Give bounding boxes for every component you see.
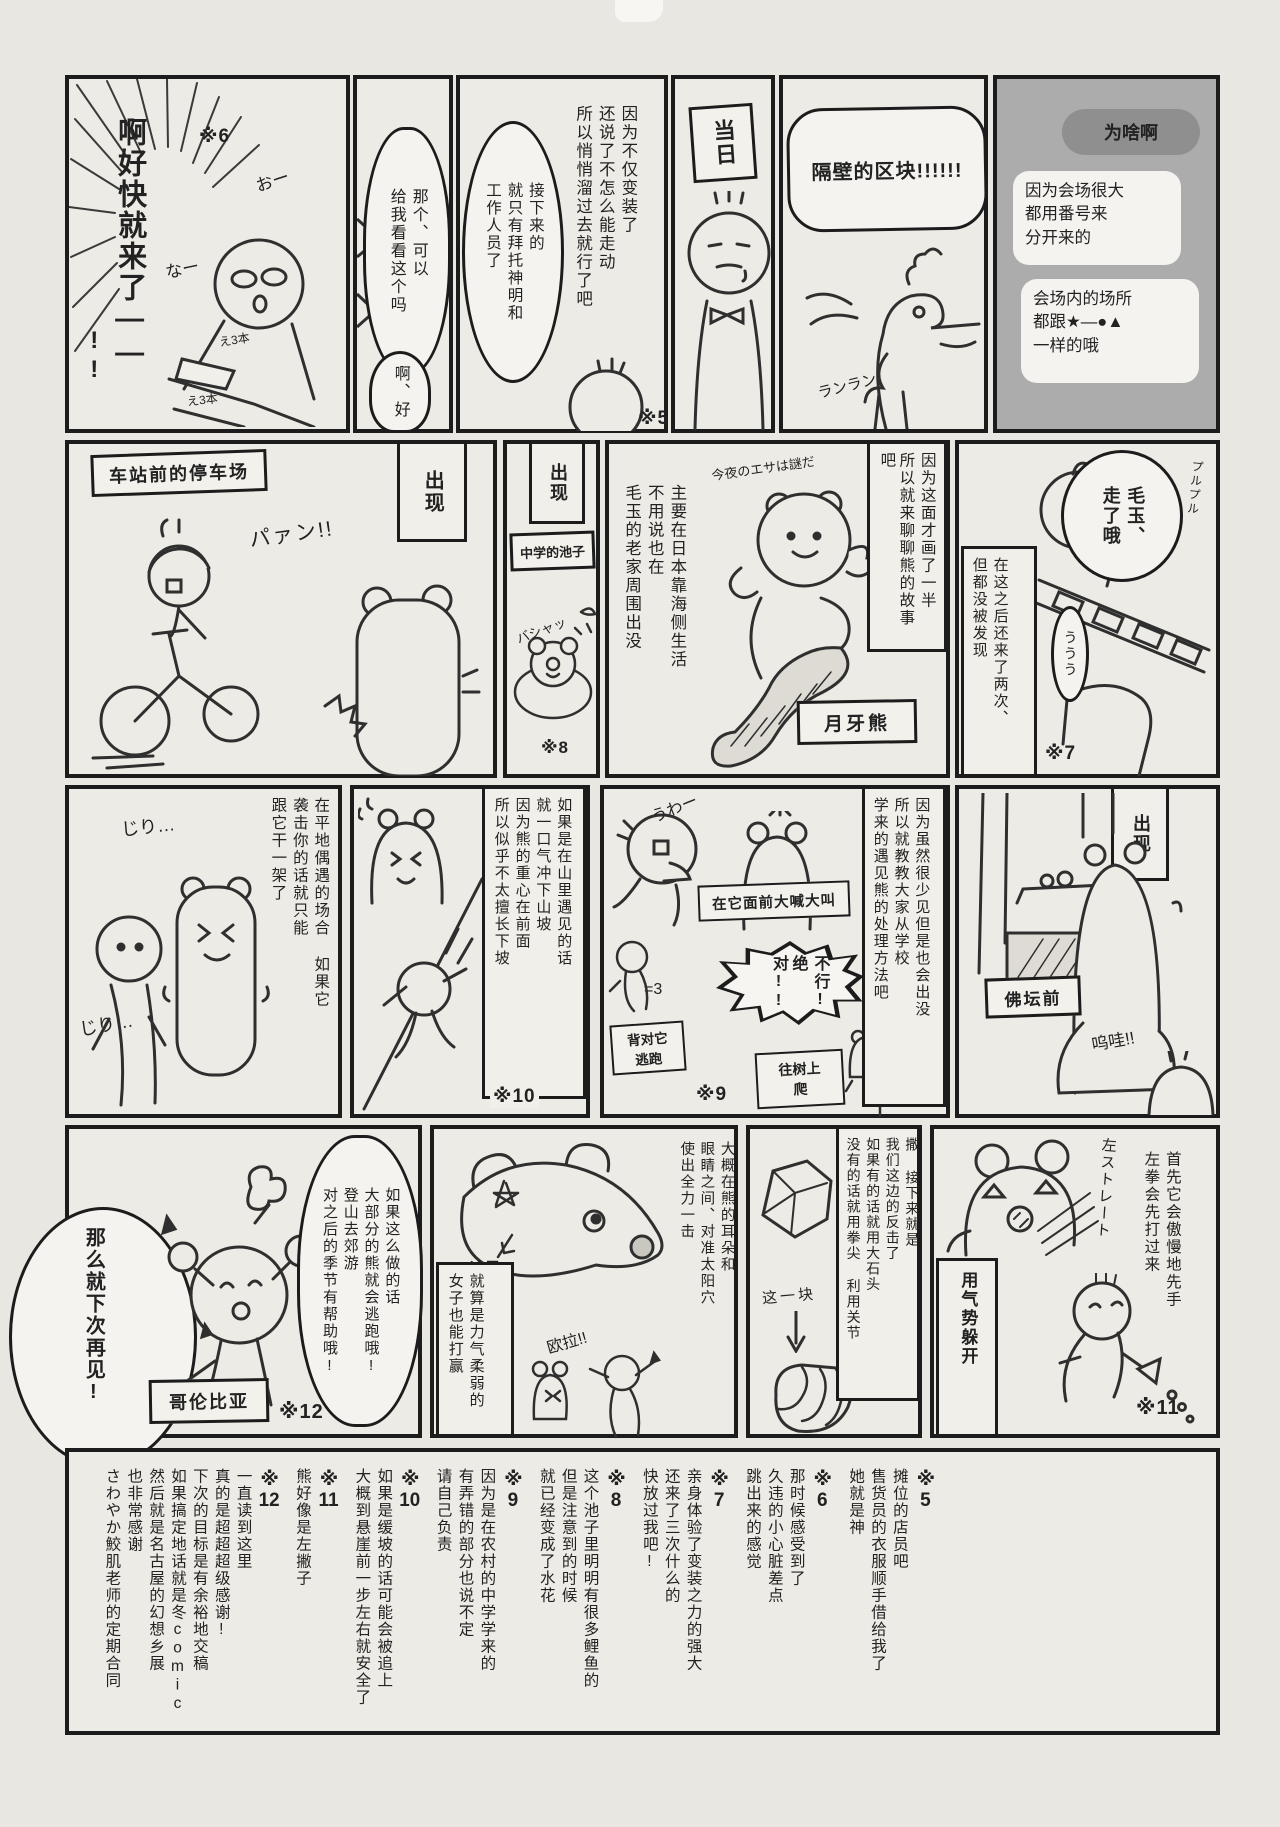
ref-mark-6: ※6 — [199, 125, 230, 148]
footnote-label: ※6 — [811, 1468, 833, 1715]
advice-line: 如果这么做的话 — [382, 1187, 400, 1376]
footnote-line: 久违的小心脏差点 — [765, 1468, 784, 1715]
footnote-line: 就已经变成了水花 — [536, 1468, 555, 1715]
bear-back-doodle — [321, 556, 481, 776]
speech-line: 毛玉、 — [1123, 486, 1145, 546]
footnote-line: 这个池子里明明有很多鲤鱼的 — [580, 1468, 599, 1715]
question-bubble: 为啥啊 — [1062, 109, 1200, 155]
panel-r3-2: 如果是在山里遇见的话 就一口气冲下山坡 因为熊的重心在前面 所以似乎不太擅长下坡… — [350, 785, 590, 1118]
footnote-line: 真的是超超超级感谢! — [211, 1468, 230, 1715]
footnote-line: 售货员的衣服顺手借给我了 — [868, 1468, 887, 1715]
caption-text: 撒 接下来就是 我们这边的反击了 如果有的话就用大石头 没有的话就用拳尖 利用关… — [842, 1137, 923, 1390]
footnote-label: ※10 — [398, 1468, 420, 1715]
speech-line: 接下来的 — [525, 182, 544, 322]
label-text: 爬 — [793, 1079, 808, 1100]
answer-line: 一样的哦 — [1033, 335, 1187, 358]
caption-text: 在这之后还来了两次、 但都没被发现 — [967, 557, 1011, 766]
panel-r1-5: 隔壁的区块!!!!!! ランラン — [779, 75, 988, 433]
ref-number: 5 — [915, 1491, 936, 1510]
footnotes-box: ※5 摊位的店员吧 售货员的衣服顺手借给我了 她就是神 ※6 那时候感受到了 久… — [65, 1448, 1220, 1735]
caption-line: 女子也能打赢 — [446, 1273, 464, 1426]
ref-mark-8: ※8 — [541, 738, 569, 758]
answer-line: 都用番号来 — [1025, 203, 1169, 226]
ref-mark-12: ※12 — [279, 1399, 324, 1424]
ref-number: 12 — [259, 1491, 280, 1510]
label-shout-at-it: 在它面前大喊大叫 — [697, 880, 850, 921]
footnote-label: ※12 — [258, 1468, 280, 1715]
ref-symbol: ※ — [812, 1468, 833, 1491]
panel-r1-6: 为啥啊 因为会场很大 都用番号来 分开来的 会场内的场所 都跟★—●▲ 一样的哦 — [993, 75, 1220, 433]
footnote-item: ※5 摊位的店员吧 售货员的衣服顺手借给我了 她就是神 — [846, 1468, 936, 1715]
note-line: 所以就来聊聊熊的故事吧 — [877, 452, 915, 641]
caption-line: 主要在日本靠海侧生活 — [667, 484, 687, 769]
ref-mark-11: ※11 — [1136, 1395, 1180, 1420]
panel-r4-3: 这一块 撒 接下来就是 我们这边的反击了 如果有的话就用大石头 没有的话就用拳尖… — [746, 1125, 922, 1438]
fleeing-person-doodle — [606, 937, 662, 1027]
scan-artifact — [615, 0, 663, 22]
caption-line: 眼睛之间、对准太阳穴 — [697, 1141, 715, 1433]
caption-line: 所以似乎不太擅长下坡 — [492, 797, 510, 1088]
advice-line: 登山去郊游 — [340, 1187, 358, 1376]
sign-altar-front: 佛坛前 — [984, 975, 1081, 1018]
advice-bubble: 如果这么做的话 大部分的熊就会逃跑哦! 登山去郊游 对之后的季节有帮助哦! — [297, 1135, 423, 1427]
reply-text: 啊、好 — [390, 365, 410, 419]
speech-text: 那个、可以 给我看看这个吗 — [384, 188, 431, 314]
footnote-line: 那时候感受到了 — [786, 1468, 805, 1715]
bowtie-person-doodle — [679, 191, 775, 431]
question-text: 为啥啊 — [1104, 119, 1158, 145]
panel-r2-4: 毛玉、 走了哦 在这之后还来了两次、 但都没被发现 ううう プルプル ※7 — [955, 440, 1220, 778]
footnote-line: 有弄错的部分也说不定 — [455, 1468, 474, 1715]
footnote-item: ※10 如果是缓坡的话可能会被追上 大概到悬崖前一步左右就安全了 — [352, 1468, 420, 1715]
label-climb-tree: 往树上 爬 — [755, 1049, 846, 1110]
panel-r4-1: 那么就下次再见! 如果这么做的话 大部分的熊就会逃跑哦! 登山去郊游 对之后的季… — [65, 1125, 422, 1438]
caption-line: 使出全力一击 — [677, 1141, 695, 1433]
speech-bubble: 接下来的 就只有拜托神明和 工作人员了 — [462, 121, 564, 383]
panel-r1-4: 当日 — [671, 75, 775, 433]
burst-text: 不行! 绝对!! — [766, 955, 832, 1025]
footnote-line: 熊好像是左撇子 — [293, 1468, 312, 1715]
caption: 大概在熊的耳朵和 眼睛之间、对准太阳穴 使出全力一击 — [674, 1141, 737, 1433]
footnote-line: 快放过我吧! — [640, 1468, 659, 1715]
caption-line: 没有的话就用拳尖 利用关节 — [845, 1137, 862, 1390]
pond-mouse-doodle — [509, 572, 597, 744]
footnote-line: 跳出来的感觉 — [743, 1468, 762, 1715]
footnote-line: 也非常感谢 — [124, 1468, 143, 1715]
shout-line: 啊好快就来了—— — [111, 117, 146, 422]
speech-line: 那个、可以 — [408, 188, 428, 314]
panel-r2-3: 主要在日本靠海侧生活 不用说也在 毛玉的老家周围出没 今夜のエサは謎だ 因为这面… — [605, 440, 950, 778]
speech-line: 就只有拜托神明和 — [504, 182, 523, 322]
caption-text: 就算是力气柔弱的 女子也能打赢 — [443, 1273, 487, 1426]
ref-mark-10: ※10 — [490, 1085, 539, 1108]
panel-r2-1: 车站前的停车场 出现 パァン!! — [65, 440, 497, 778]
caption-line: 但都没被发现 — [970, 557, 988, 766]
footnote-line: 如果搞定地话就是冬comic — [168, 1468, 187, 1715]
sign-text: 月牙熊 — [824, 708, 890, 736]
down-arrow-icon — [784, 1311, 808, 1353]
ref-mark-9: ※9 — [696, 1083, 727, 1106]
dodge-box: 用气势躲开 — [936, 1258, 998, 1434]
groan-bubble: ううう — [1051, 606, 1089, 702]
piece-label: 这一块 — [761, 1283, 817, 1309]
panel-r3-3: うわー 在它面前大喊大叫 不行! 绝对!! =3 背对它 逃跑 往树上 爬 ※9 — [600, 785, 950, 1118]
note-line: 因为这面才画了一半 — [917, 452, 936, 641]
caption-line: 如果是在山里遇见的话 — [554, 797, 572, 1088]
caption-box: 如果是在山里遇见的话 就一口气冲下山坡 因为熊的重心在前面 所以似乎不太擅长下坡 — [482, 789, 586, 1099]
ref-number: 8 — [606, 1491, 627, 1510]
footnote-line: 她就是神 — [846, 1468, 865, 1715]
label-run-away: 背对它 逃跑 — [609, 1020, 686, 1075]
ref-symbol: ※ — [399, 1468, 420, 1491]
shout-line: !! — [80, 327, 109, 422]
footnote-line: 如果是缓坡的话可能会被追上 — [374, 1468, 393, 1715]
sign-school-pond: 中学的池子 — [509, 531, 595, 572]
burst-line: 绝对!! — [769, 955, 808, 1025]
ref-number: 10 — [399, 1491, 420, 1510]
panel-r3-1: 在平地偶遇的场合 如果它 袭击你的话就只能 跟它干一架了 じり… じり… — [65, 785, 342, 1118]
caption-line: 撒 接下来就是 — [903, 1137, 920, 1390]
shout-text: 啊好快就来了—— !! — [77, 117, 149, 422]
footnote-line: さわやか鮫肌老师的定期合同 — [102, 1468, 121, 1715]
footnote-label: ※11 — [317, 1468, 339, 1715]
answer-bubble: 会场内的场所 都跟★—●▲ 一样的哦 — [1021, 279, 1199, 383]
footnote-line: 然后就是名古屋的幻想乡展 — [146, 1468, 165, 1715]
speech-bubble: 那个、可以 给我看看这个吗 — [363, 127, 451, 375]
footnote-line: 请自己负责 — [433, 1468, 452, 1715]
footnote-label: ※8 — [605, 1468, 627, 1715]
caption-line: 所以就教教大家从学校 — [891, 797, 909, 1096]
footnote-item: ※6 那时候感受到了 久违的小心脏差点 跳出来的感觉 — [743, 1468, 833, 1715]
sign-text: 中学的池子 — [520, 540, 586, 561]
caption-line: 学来的遇见熊的处理方法吧 — [871, 797, 889, 1096]
caption-box: 因为虽然很少见但是也会出没 所以就教教大家从学校 学来的遇见熊的处理方法吧 — [862, 789, 946, 1107]
panel-r3-4: 出现 佛坛前 呜哇!! — [955, 785, 1220, 1118]
caption-line: 就算是力气柔弱的 — [466, 1273, 484, 1426]
caption-line: 在平地偶遇的场合 如果它 — [310, 797, 329, 1097]
sign-text: 佛坛前 — [1004, 984, 1062, 1011]
caption-line: 大概在熊的耳朵和 — [717, 1141, 735, 1433]
footnote-line: 还来了三次什么的 — [661, 1468, 680, 1715]
sign-text: 当日 — [708, 118, 738, 168]
sign-text: 哥伦比亚 — [169, 1387, 249, 1414]
label-text: 往树上 — [778, 1058, 821, 1080]
panel-r1-3: 接下来的 就只有拜托神明和 工作人员了 因为不仅变装了 还说了不怎么能走动 所以… — [456, 75, 668, 433]
footnote-line: 一直读到这里 — [233, 1468, 252, 1715]
caption-line: 我们这边的反击了 — [884, 1137, 901, 1390]
ref-symbol: ※ — [502, 1468, 523, 1491]
footnote-line: 但是注意到的时候 — [558, 1468, 577, 1715]
label-text: 背对它 — [626, 1027, 668, 1050]
answer-line: 因为会场很大 — [1025, 180, 1169, 203]
manga-page: { "page": { "paper_color": "#e9e7e1", "i… — [0, 0, 1280, 1827]
speech-bubble: 毛玉、 走了哦 — [1061, 450, 1183, 582]
footnote-line: 下次的目标是有余裕地交稿 — [190, 1468, 209, 1715]
caption-line: 因为熊的重心在前面 — [512, 797, 530, 1088]
speech-text: 接下来的 就只有拜托神明和 工作人员了 — [480, 182, 547, 322]
speech-line: 给我看看这个吗 — [386, 188, 406, 314]
answer-bubble: 因为会场很大 都用番号来 分开来的 — [1013, 171, 1181, 265]
footnote-line: 摊位的店员吧 — [890, 1468, 909, 1715]
ref-number: 9 — [502, 1491, 523, 1510]
footnote-item: ※9 因为是在农村的中学学来的 有弄错的部分也说不定 请自己负责 — [433, 1468, 523, 1715]
ref-symbol: ※ — [606, 1468, 627, 1491]
sign-moon-bear: 月牙熊 — [797, 699, 918, 745]
person-standing-doodle — [81, 909, 173, 1109]
appear-label: 出现 — [397, 444, 467, 542]
caption-line: 就一口气冲下山坡 — [533, 797, 551, 1088]
caption-box: 撒 接下来就是 我们这边的反击了 如果有的话就用大石头 没有的话就用拳尖 利用关… — [836, 1129, 920, 1401]
label-text: 在它面前大喊大叫 — [712, 888, 837, 913]
footnote-line: 因为是在农村的中学学来的 — [477, 1468, 496, 1715]
caption-line: 因为虽然很少见但是也会出没 — [912, 797, 930, 1096]
footnote-item: ※8 这个池子里明明有很多鲤鱼的 但是注意到的时候 就已经变成了水花 — [536, 1468, 626, 1715]
footnote-item: ※7 亲身体验了变装之力的强大 还来了三次什么的 快放过我吧! — [640, 1468, 730, 1715]
panel-r1-1: 啊好快就来了—— !! ※6 おー なー え3本 え3本 — [65, 75, 350, 433]
appear-text: 出现 — [546, 463, 568, 503]
ref-mark-5: ※5 — [638, 407, 669, 430]
sign-text: 车站前的停车场 — [109, 458, 250, 489]
caption: 主要在日本靠海侧生活 不用说也在 毛玉的老家周围出没 — [619, 484, 689, 769]
sfx-uuu: ううう — [1061, 630, 1078, 678]
panel-r4-2: 这里 就算是力气柔弱的 女子也能打赢 欧拉!! 大概在熊的耳朵和 眼睛之间、对准… — [430, 1125, 738, 1438]
ref-symbol: ※ — [709, 1468, 730, 1491]
caption-box: 就算是力气柔弱的 女子也能打赢 — [436, 1262, 514, 1434]
caption-text: 因为虽然很少见但是也会出没 所以就教教大家从学校 学来的遇见熊的处理方法吧 — [868, 797, 933, 1096]
footnote-label: ※7 — [708, 1468, 730, 1715]
label-text: 逃跑 — [635, 1047, 663, 1069]
caption-line: 袭击你的话就只能 — [289, 797, 308, 1097]
footnote-label: ※5 — [914, 1468, 936, 1715]
advice-line: 对之后的季节有帮助哦! — [320, 1187, 338, 1376]
ref-number: 6 — [812, 1491, 833, 1510]
punch-practice-doodle — [526, 1347, 676, 1439]
footnote-line: 亲身体验了变装之力的强大 — [683, 1468, 702, 1715]
footnote-item: ※12 一直读到这里 真的是超超超级感谢! 下次的目标是有余裕地交稿 如果搞定地… — [102, 1468, 280, 1715]
dodge-text: 用气势躲开 — [957, 1271, 978, 1434]
ref-number: 11 — [318, 1491, 339, 1510]
panel-r1-2: 那个、可以 给我看看这个吗 啊、好 — [353, 75, 453, 433]
ref-symbol: ※ — [259, 1468, 280, 1491]
panel-r4-4: 左ストレート 首先它会傲慢地先手 左拳会先打过来 用气势躲开 ※11 — [930, 1125, 1220, 1438]
advice-line: 大部分的熊就会逃跑哦! — [361, 1187, 379, 1376]
speech-line: 走了哦 — [1099, 486, 1121, 546]
footnote-line: 大概到悬崖前一步左右就安全了 — [352, 1468, 371, 1715]
sign-day: 当日 — [688, 103, 757, 183]
sfx-jiri: じり… — [120, 810, 176, 842]
ref-symbol: ※ — [318, 1468, 339, 1491]
caption-line: 在这之后还来了两次、 — [990, 557, 1008, 766]
caption: 在平地偶遇的场合 如果它 袭击你的话就只能 跟它干一架了 — [265, 797, 332, 1097]
rock-doodle — [755, 1157, 837, 1241]
burst-line: 不行! — [810, 955, 830, 1025]
surprised-head-doodle — [1141, 1051, 1217, 1115]
caption-text: 如果是在山里遇见的话 就一口气冲下山坡 因为熊的重心在前面 所以似乎不太擅长下坡 — [489, 797, 575, 1088]
ref-symbol: ※ — [915, 1468, 936, 1491]
note-text: 因为这面才画了一半 所以就来聊聊熊的故事吧 — [874, 452, 938, 641]
farewell-text: 那么就下次再见! — [81, 1227, 105, 1437]
caption-box: 在这之后还来了两次、 但都没被发现 — [961, 546, 1037, 774]
sign-columbia: 哥伦比亚 — [149, 1378, 270, 1424]
advice-text: 如果这么做的话 大部分的熊就会逃跑哦! 登山去郊游 对之后的季节有帮助哦! — [317, 1187, 403, 1376]
caption-line: 不用说也在 — [644, 484, 664, 769]
sign-station-parking: 车站前的停车场 — [90, 449, 267, 497]
answer-line: 分开来的 — [1025, 227, 1169, 250]
bear-standing-doodle — [161, 867, 271, 1077]
ref-number: 7 — [709, 1491, 730, 1510]
panel-r2-2: 出现 中学的池子 バシャッ ※8 — [503, 440, 600, 778]
shout-cloud: 隔壁的区块!!!!!! — [786, 105, 988, 232]
footnote-item: ※11 熊好像是左撇子 — [293, 1468, 339, 1715]
appear-text: 出现 — [420, 470, 444, 514]
speech-line: 工作人员了 — [482, 182, 501, 322]
ref-mark-7: ※7 — [1045, 742, 1076, 765]
appear-label: 出现 — [529, 444, 585, 524]
answer-line: 会场内的场所 — [1033, 288, 1187, 311]
block-title: 隔壁的区块!!!!!! — [811, 153, 962, 185]
reply-bubble: 啊、好 — [369, 351, 431, 433]
caption-line: 如果有的话就用大石头 — [864, 1137, 881, 1390]
note-box: 因为这面才画了一半 所以就来聊聊熊的故事吧 — [867, 444, 947, 652]
answer-line: 都跟★—●▲ — [1033, 311, 1187, 334]
caption-line: 毛玉的老家周围出没 — [622, 484, 642, 769]
footnote-label: ※9 — [501, 1468, 523, 1715]
speech-text: 毛玉、 走了哦 — [1096, 486, 1147, 546]
book-label: え3本 — [186, 389, 218, 409]
footnotes-list: ※5 摊位的店员吧 售货员的衣服顺手借给我了 她就是神 ※6 那时候感受到了 久… — [89, 1468, 949, 1715]
